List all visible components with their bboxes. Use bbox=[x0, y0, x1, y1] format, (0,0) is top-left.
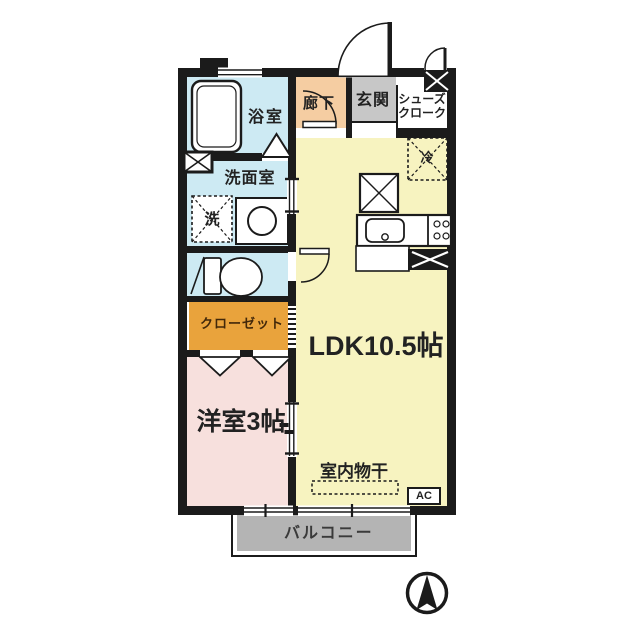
bathroom-window bbox=[218, 68, 262, 78]
drying-rail-box bbox=[312, 481, 398, 494]
entrance-label: 玄関 bbox=[349, 92, 397, 110]
balcony-label: バルコニー bbox=[284, 525, 370, 543]
counter-return bbox=[356, 246, 452, 271]
entrance-door bbox=[338, 22, 392, 78]
north-arrow-icon bbox=[408, 574, 447, 613]
wash-basin bbox=[236, 198, 288, 244]
bathtub bbox=[192, 81, 241, 152]
floorplan-canvas: 浴室 洗面室 洗 廊下 玄関 シューズ クローク 冷 LDK10.5帖 クローゼ… bbox=[0, 0, 640, 640]
washroom-label: 洗面室 bbox=[206, 170, 294, 188]
bathroom-label: 浴室 bbox=[238, 109, 294, 127]
ldk-label: LDK10.5帖 bbox=[303, 331, 449, 362]
toilet-fixture bbox=[191, 257, 262, 296]
shoe-cloak-line1: シューズ bbox=[398, 92, 445, 106]
washer-label: 洗 bbox=[197, 211, 227, 228]
kitchen-x-box bbox=[360, 174, 398, 212]
closet-label: クローゼット bbox=[196, 317, 288, 332]
toilet-door bbox=[288, 249, 329, 283]
shoe-cloak-line2: クローク bbox=[398, 106, 446, 120]
closet-folding-door-right bbox=[253, 357, 291, 376]
western-room-label: 洋室3帖 bbox=[189, 408, 293, 437]
closet-folding-door-left bbox=[200, 357, 240, 376]
hallway-label: 廊下 bbox=[296, 95, 342, 112]
drying-label: 室内物干 bbox=[310, 462, 398, 482]
western-window bbox=[244, 504, 293, 517]
kitchen-counter bbox=[357, 215, 451, 246]
wall-vent-box bbox=[184, 152, 212, 172]
fridge-label: 冷 bbox=[413, 151, 441, 166]
vent-window-box bbox=[424, 70, 450, 92]
shoe-cloak-label: シューズ クローク bbox=[396, 93, 448, 121]
ldk-window bbox=[298, 504, 410, 517]
bath-folding-door bbox=[262, 134, 291, 157]
ac-label: AC bbox=[408, 490, 440, 503]
